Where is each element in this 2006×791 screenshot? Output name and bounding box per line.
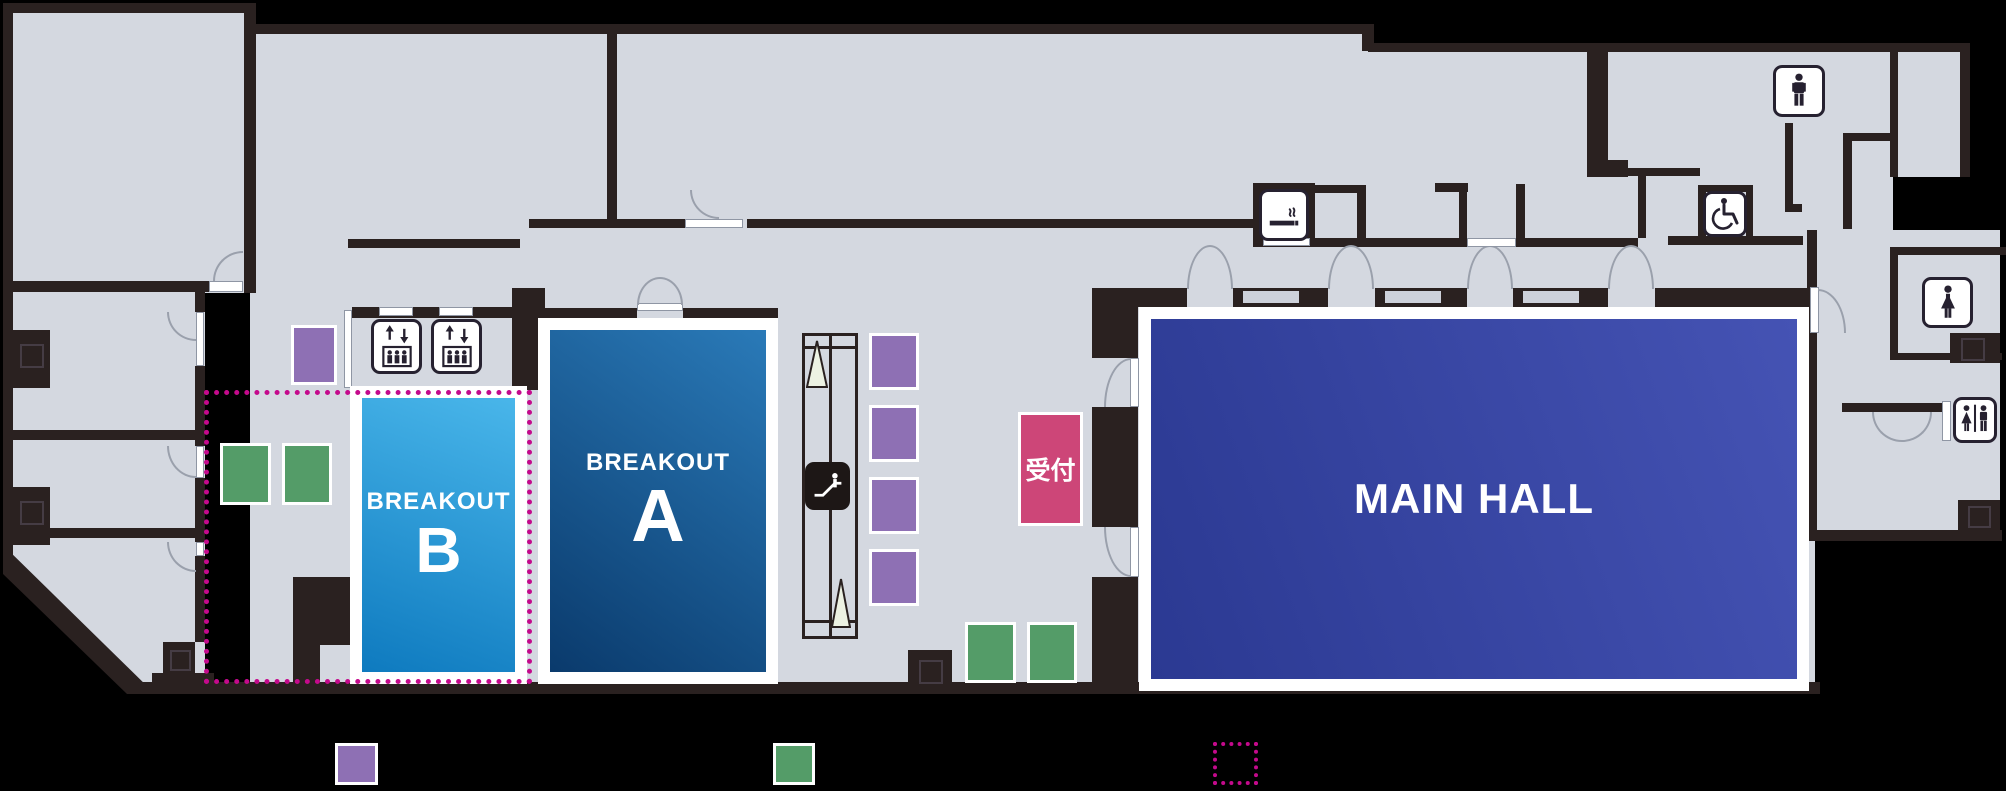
room-main-hall: MAIN HALL bbox=[1139, 307, 1809, 691]
wall bbox=[747, 219, 1259, 228]
mens-restroom-icon bbox=[1773, 65, 1825, 117]
wall bbox=[1587, 47, 1608, 177]
door bbox=[209, 281, 243, 292]
room-letter: A bbox=[631, 479, 684, 553]
green-zone-block bbox=[1027, 622, 1077, 683]
wall bbox=[1746, 185, 1753, 243]
door bbox=[344, 310, 352, 388]
womens-restroom-icon bbox=[1922, 277, 1973, 328]
purple-zone-block bbox=[869, 477, 919, 534]
door bbox=[379, 307, 413, 316]
wheelchair-accessible-icon bbox=[1703, 191, 1747, 237]
legend-green-zone-swatch bbox=[773, 743, 815, 785]
room-label: MAIN HALL bbox=[1354, 475, 1594, 523]
pillar-outline bbox=[919, 660, 943, 684]
wall bbox=[352, 307, 514, 318]
wall bbox=[683, 308, 778, 318]
wall bbox=[607, 30, 617, 226]
wall bbox=[3, 3, 256, 13]
door bbox=[1942, 401, 1951, 441]
wall bbox=[1843, 133, 1890, 141]
pillar-outline bbox=[1968, 506, 1991, 528]
wall bbox=[529, 219, 685, 228]
wall bbox=[1459, 183, 1467, 247]
door bbox=[1130, 358, 1139, 407]
elevator-icon bbox=[431, 319, 482, 374]
wall bbox=[1516, 184, 1525, 246]
smoking-area-icon bbox=[1259, 189, 1309, 241]
escalator-up-arrow bbox=[831, 577, 851, 629]
pillar-outline bbox=[20, 501, 44, 525]
pillar-outline bbox=[1961, 338, 1985, 361]
elevator-glyph bbox=[377, 324, 417, 370]
door bbox=[1467, 238, 1516, 247]
wall bbox=[1960, 43, 1970, 177]
wall bbox=[1890, 47, 1898, 177]
wall bbox=[1638, 168, 1646, 238]
elevator-icon bbox=[371, 319, 422, 374]
wall bbox=[1807, 530, 2002, 541]
purple-zone-block bbox=[291, 325, 337, 385]
purple-zone-block bbox=[869, 333, 919, 390]
pillar-outline bbox=[20, 344, 44, 368]
elevator-glyph bbox=[437, 324, 477, 370]
wall-panel bbox=[1385, 291, 1441, 303]
wall bbox=[3, 281, 211, 292]
reception-desk: 受付 bbox=[1018, 412, 1083, 526]
floor-area bbox=[1810, 230, 2000, 540]
venue-floor-map: BREAKOUT B BREAKOUT A MAIN HALL 受付 bbox=[0, 0, 2006, 791]
legend-magenta-highlight-swatch bbox=[1213, 742, 1258, 785]
escalator-icon bbox=[805, 462, 850, 510]
wall-panel bbox=[1243, 291, 1299, 303]
legend-purple-zone-swatch bbox=[335, 743, 378, 785]
wall bbox=[540, 308, 637, 318]
wall bbox=[1092, 407, 1138, 527]
wall bbox=[1785, 204, 1802, 212]
green-zone-block bbox=[965, 622, 1016, 683]
door bbox=[1130, 527, 1139, 577]
wall bbox=[244, 3, 256, 293]
wall bbox=[1368, 43, 1968, 52]
floor-area bbox=[1893, 43, 1968, 177]
wall bbox=[1843, 133, 1852, 229]
escalator-up-arrow bbox=[806, 339, 828, 389]
purple-zone-block bbox=[869, 405, 919, 462]
pillar-outline bbox=[170, 650, 191, 671]
floor-area bbox=[3, 3, 250, 293]
wall bbox=[1357, 185, 1366, 242]
purple-zone-block bbox=[869, 549, 919, 606]
room-label: BREAKOUT bbox=[586, 449, 730, 477]
wall bbox=[1516, 238, 1638, 247]
room-main-hall-fill: MAIN HALL bbox=[1151, 319, 1797, 679]
room-breakout-a-fill: BREAKOUT A bbox=[550, 330, 766, 672]
wall bbox=[1668, 236, 1803, 245]
door bbox=[196, 446, 204, 478]
wall bbox=[3, 430, 195, 440]
door bbox=[439, 307, 473, 316]
door bbox=[685, 219, 743, 228]
wall bbox=[348, 239, 520, 248]
magenta-highlight-area bbox=[204, 390, 532, 684]
wall bbox=[195, 292, 205, 312]
reception-label: 受付 bbox=[1025, 451, 1075, 487]
door bbox=[196, 312, 204, 366]
wall bbox=[1890, 247, 1898, 359]
wall bbox=[1130, 288, 1187, 307]
door bbox=[196, 542, 204, 556]
wall bbox=[1890, 247, 2006, 255]
wall bbox=[1655, 288, 1815, 307]
wall bbox=[1785, 123, 1793, 212]
unisex-restroom-icon bbox=[1953, 397, 1997, 443]
wall bbox=[1842, 403, 1942, 412]
wall bbox=[1092, 577, 1138, 684]
wall-panel bbox=[1523, 291, 1579, 303]
room-breakout-a: BREAKOUT A bbox=[538, 318, 778, 684]
wall bbox=[1620, 168, 1700, 176]
wall bbox=[250, 24, 1368, 34]
wall bbox=[1435, 183, 1468, 192]
